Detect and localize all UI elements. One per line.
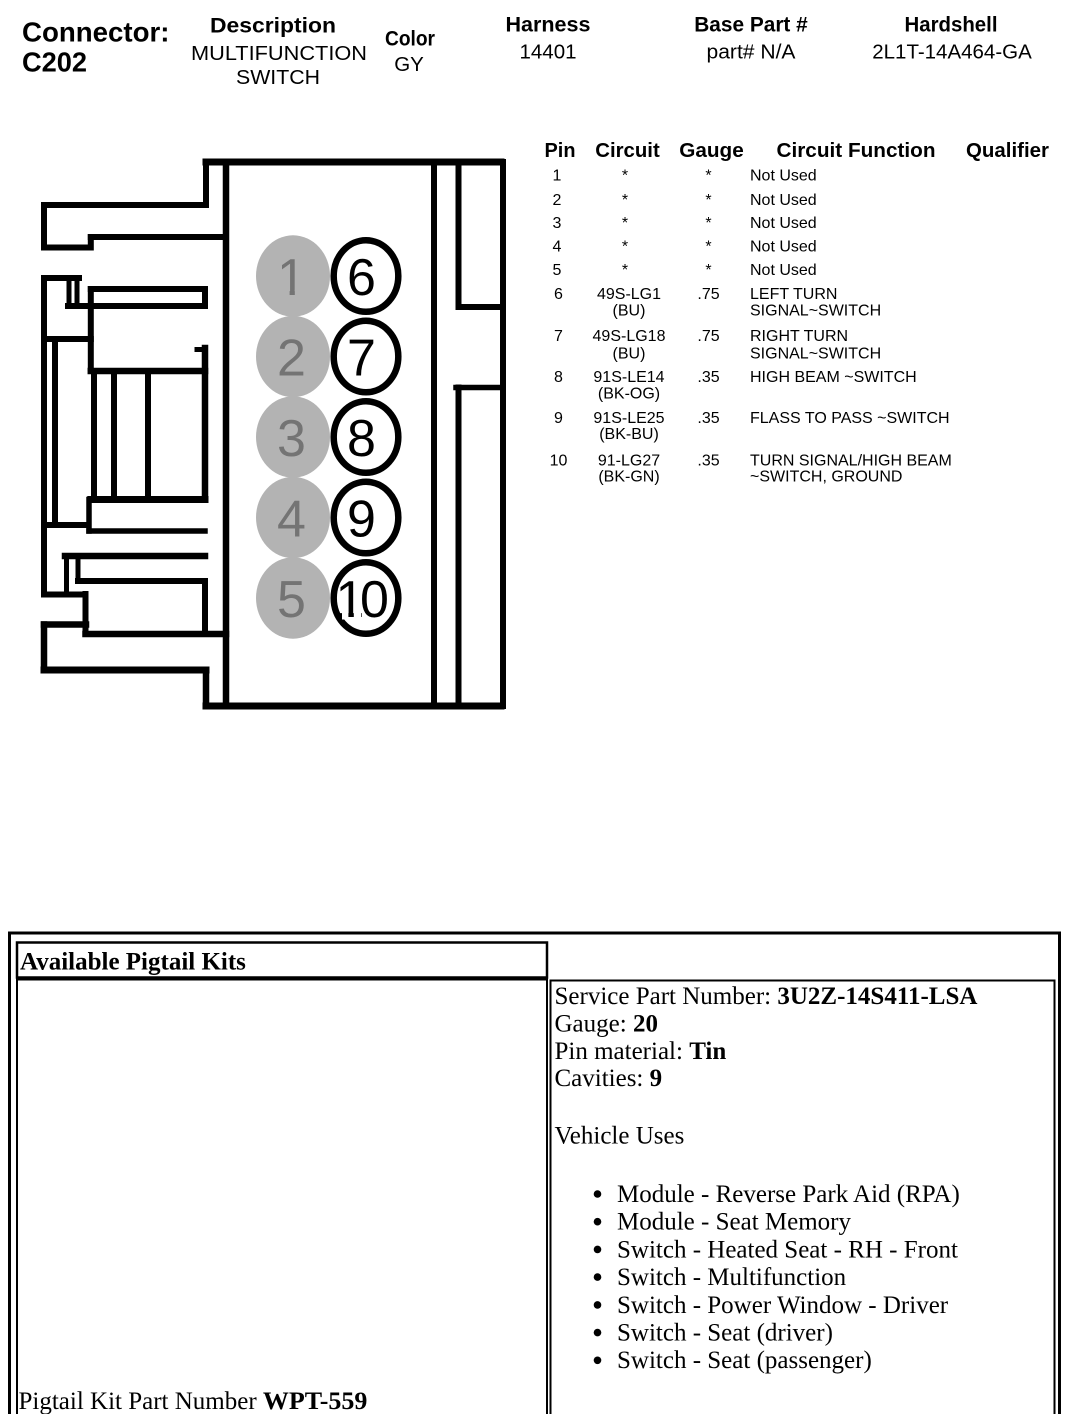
- svg-text:8: 8: [554, 369, 563, 386]
- svg-text:Gauge: 20: Gauge: 20: [555, 1010, 658, 1037]
- svg-text:3: 3: [277, 410, 306, 468]
- svg-text:part# N/A: part# N/A: [707, 40, 796, 63]
- svg-text:4: 4: [277, 491, 306, 549]
- svg-text:*: *: [622, 262, 628, 279]
- svg-text:5: 5: [277, 571, 306, 629]
- svg-text:Vehicle Uses: Vehicle Uses: [555, 1122, 685, 1149]
- svg-text:Switch - Heated Seat - RH - Fr: Switch - Heated Seat - RH - Front: [617, 1236, 958, 1263]
- svg-text:Module - Reverse Park Aid (RPA: Module - Reverse Park Aid (RPA): [617, 1181, 960, 1208]
- svg-text:Pin: Pin: [545, 140, 576, 162]
- svg-text:Cavities: 9: Cavities: 9: [555, 1065, 663, 1092]
- svg-text:91-LG27: 91-LG27: [598, 452, 660, 469]
- svg-text:MULTIFUNCTION: MULTIFUNCTION: [191, 42, 367, 65]
- svg-text:1: 1: [553, 168, 562, 185]
- svg-text:14401: 14401: [519, 40, 576, 63]
- svg-text:9: 9: [347, 491, 376, 549]
- svg-text:HIGH BEAM ~SWITCH: HIGH BEAM ~SWITCH: [750, 369, 917, 386]
- svg-text:Harness: Harness: [506, 14, 591, 37]
- svg-text:*: *: [705, 192, 711, 209]
- svg-text:.75: .75: [697, 328, 719, 345]
- svg-text:*: *: [622, 239, 628, 256]
- svg-text:*: *: [622, 168, 628, 185]
- svg-text:(BK-OG): (BK-OG): [598, 385, 660, 402]
- svg-text:2: 2: [553, 192, 562, 209]
- svg-text:*: *: [622, 215, 628, 232]
- svg-text:*: *: [705, 239, 711, 256]
- svg-text:Switch - Seat (driver): Switch - Seat (driver): [617, 1320, 833, 1347]
- svg-text:Service Part Number: 3U2Z-14S4: Service Part Number: 3U2Z-14S411-LSA: [555, 983, 978, 1010]
- svg-text:Description: Description: [210, 14, 336, 38]
- svg-text:7: 7: [347, 330, 376, 388]
- svg-text:5: 5: [553, 262, 562, 279]
- svg-text:TURN SIGNAL/HIGH BEAM: TURN SIGNAL/HIGH BEAM: [750, 452, 952, 469]
- svg-text:Switch - Seat (passenger): Switch - Seat (passenger): [617, 1347, 872, 1374]
- svg-text:0: 0: [360, 571, 389, 629]
- svg-text:Connector:: Connector:: [22, 17, 170, 48]
- svg-text:*: *: [622, 192, 628, 209]
- svg-text:GY: GY: [394, 53, 424, 76]
- svg-text:FLASS TO PASS ~SWITCH: FLASS TO PASS ~SWITCH: [750, 410, 950, 427]
- svg-text:(BU): (BU): [613, 302, 646, 319]
- svg-text:C202: C202: [22, 47, 87, 78]
- svg-text:Qualifier: Qualifier: [966, 140, 1049, 162]
- svg-text:SIGNAL~SWITCH: SIGNAL~SWITCH: [750, 345, 881, 362]
- svg-text:.35: .35: [697, 410, 719, 427]
- svg-text:Available Pigtail Kits: Available Pigtail Kits: [20, 949, 246, 976]
- svg-text:*: *: [705, 215, 711, 232]
- svg-text:2L1T-14A464-GA: 2L1T-14A464-GA: [872, 40, 1032, 63]
- svg-text:91S-LE14: 91S-LE14: [593, 369, 664, 386]
- svg-text:Gauge: Gauge: [679, 140, 744, 162]
- svg-text:.75: .75: [697, 286, 719, 303]
- svg-text:Hardshell: Hardshell: [905, 14, 998, 37]
- svg-text:49S-LG1: 49S-LG1: [597, 286, 661, 303]
- svg-text:Not Used: Not Used: [750, 262, 817, 279]
- svg-text:SIGNAL~SWITCH: SIGNAL~SWITCH: [750, 302, 881, 319]
- svg-text:10: 10: [550, 452, 568, 469]
- svg-text:*: *: [705, 262, 711, 279]
- svg-text:6: 6: [554, 286, 563, 303]
- svg-text:2: 2: [277, 330, 306, 388]
- svg-text:4: 4: [553, 239, 562, 256]
- svg-text:(BK-GN): (BK-GN): [598, 469, 659, 486]
- svg-text:Not Used: Not Used: [750, 215, 817, 232]
- svg-text:Switch - Multifunction: Switch - Multifunction: [617, 1264, 847, 1291]
- svg-text:Not Used: Not Used: [750, 192, 817, 209]
- svg-text:RIGHT TURN: RIGHT TURN: [750, 328, 848, 345]
- svg-text:Base Part #: Base Part #: [694, 14, 808, 37]
- svg-text:1: 1: [277, 249, 306, 307]
- svg-text:Pigtail Kit Part Number WPT-55: Pigtail Kit Part Number WPT-559: [19, 1388, 368, 1414]
- svg-text:9: 9: [554, 410, 563, 427]
- svg-text:SWITCH: SWITCH: [236, 66, 320, 89]
- svg-text:3: 3: [553, 215, 562, 232]
- svg-text:.35: .35: [697, 369, 719, 386]
- svg-text:LEFT TURN: LEFT TURN: [750, 286, 837, 303]
- svg-text:*: *: [705, 168, 711, 185]
- svg-text:Switch - Power Window - Driver: Switch - Power Window - Driver: [617, 1292, 949, 1319]
- svg-text:.35: .35: [697, 452, 719, 469]
- svg-text:Module - Seat Memory: Module - Seat Memory: [617, 1209, 851, 1236]
- svg-text:Circuit: Circuit: [595, 140, 660, 162]
- svg-text:7: 7: [554, 328, 563, 345]
- svg-text:Circuit Function: Circuit Function: [777, 140, 936, 162]
- svg-text:Not Used: Not Used: [750, 168, 817, 185]
- svg-text:Pin material: Tin: Pin material: Tin: [555, 1038, 727, 1065]
- svg-text:Color: Color: [385, 28, 435, 51]
- svg-text:49S-LG18: 49S-LG18: [593, 328, 666, 345]
- svg-text:91S-LE25: 91S-LE25: [593, 410, 664, 427]
- svg-text:~SWITCH, GROUND: ~SWITCH, GROUND: [750, 469, 902, 486]
- svg-text:(BU): (BU): [613, 345, 646, 362]
- svg-text:8: 8: [347, 410, 376, 468]
- svg-text:(BK-BU): (BK-BU): [599, 426, 659, 443]
- svg-text:Not Used: Not Used: [750, 239, 817, 256]
- svg-text:6: 6: [347, 249, 376, 307]
